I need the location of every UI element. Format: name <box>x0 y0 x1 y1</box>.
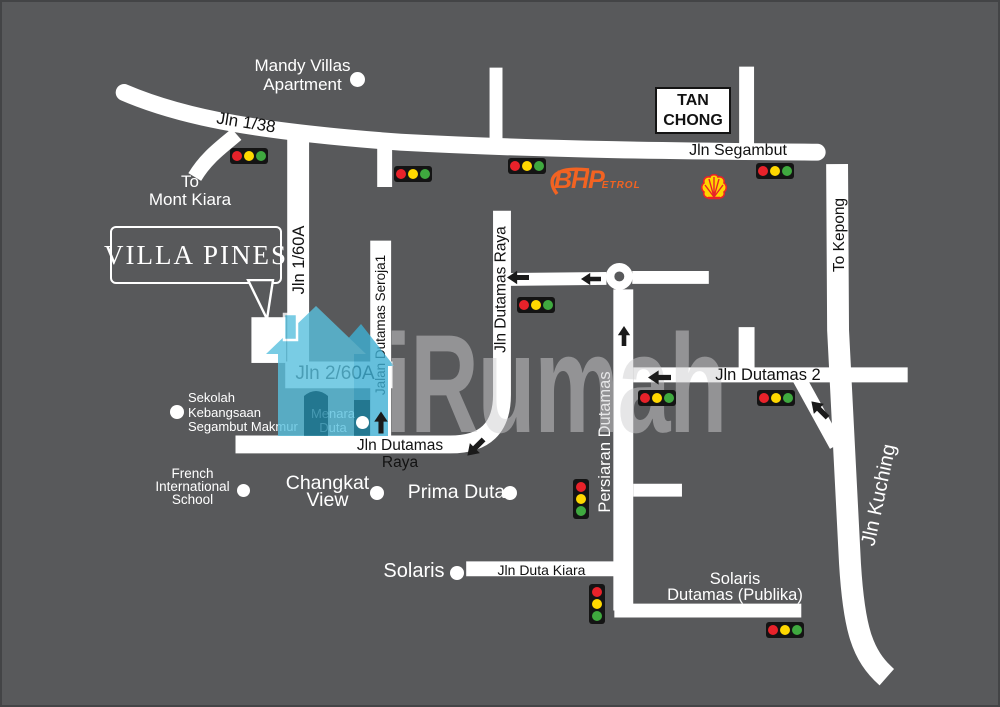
direction-to-mont-kiara: To Mont Kiara <box>120 173 260 209</box>
tan-chong-label: TAN CHONG <box>655 87 731 134</box>
landmark-dot <box>503 486 517 500</box>
villa-pines-logo-text-1: VILLA <box>104 240 195 271</box>
landmark-dot <box>356 416 369 429</box>
roundabout-center <box>614 271 624 281</box>
landmark-dot <box>370 486 384 500</box>
traffic-light-icon <box>756 163 794 179</box>
left-arrow-icon <box>507 270 529 285</box>
location-map: iRumah Jln 1/38 Jln Segambut To Kepong J… <box>0 0 1000 707</box>
traffic-light-icon <box>757 390 795 406</box>
landmark-dot <box>170 405 184 419</box>
villa-pines-logo: VILLA PINES <box>110 226 282 284</box>
road-label-jln-segambut: Jln Segambut <box>678 142 798 159</box>
landmark-prima-duta: Prima Duta <box>404 482 509 503</box>
up-arrow-icon <box>374 412 389 434</box>
bhpetrol-logo-subtext: ETROL <box>602 181 641 191</box>
shell-logo-icon <box>700 172 728 201</box>
road-label-jln-duta-kiara: Jln Duta Kiara <box>495 563 588 578</box>
villa-pines-logo-text-2: PINES <box>203 240 288 271</box>
traffic-light-icon <box>230 148 268 164</box>
landmark-solaris: Solaris <box>374 561 454 583</box>
road-label-jln-dutamas-2: Jln Dutamas 2 <box>706 367 830 385</box>
landmark-solaris-dutamas: Solaris Dutamas (Publika) <box>635 571 835 603</box>
logo-pointer <box>240 279 280 321</box>
traffic-light-icon <box>573 479 589 519</box>
bhpetrol-logo: BHP ETROL <box>554 168 641 193</box>
traffic-light-icon <box>638 390 676 406</box>
left-arrow-icon <box>581 272 601 286</box>
traffic-light-icon <box>766 622 804 638</box>
traffic-light-icon <box>508 158 546 174</box>
left-arrow-icon <box>648 370 671 385</box>
traffic-light-icon <box>589 584 605 624</box>
landmark-dot <box>450 566 464 580</box>
road-label-to-kepong: To Kepong <box>832 175 850 295</box>
bhpetrol-swoosh-icon <box>543 165 595 197</box>
irumah-watermark: iRumah <box>385 314 726 454</box>
landmark-dot <box>350 72 365 87</box>
landmark-dot <box>237 484 250 497</box>
landmark-french-school: French International School <box>130 467 255 506</box>
traffic-light-icon <box>517 297 555 313</box>
up-arrow-icon <box>617 326 631 346</box>
traffic-light-icon <box>394 166 432 182</box>
